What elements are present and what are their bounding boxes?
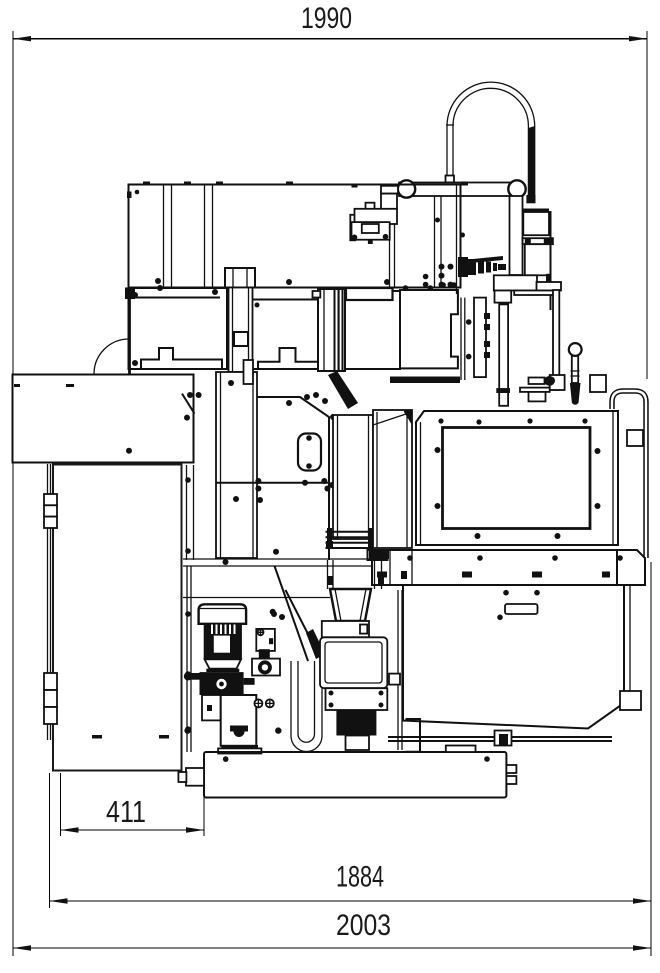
svg-text:1884: 1884 bbox=[336, 861, 384, 894]
svg-text:2003: 2003 bbox=[336, 909, 391, 942]
svg-text:411: 411 bbox=[106, 794, 146, 829]
svg-text:1990: 1990 bbox=[301, 2, 352, 35]
